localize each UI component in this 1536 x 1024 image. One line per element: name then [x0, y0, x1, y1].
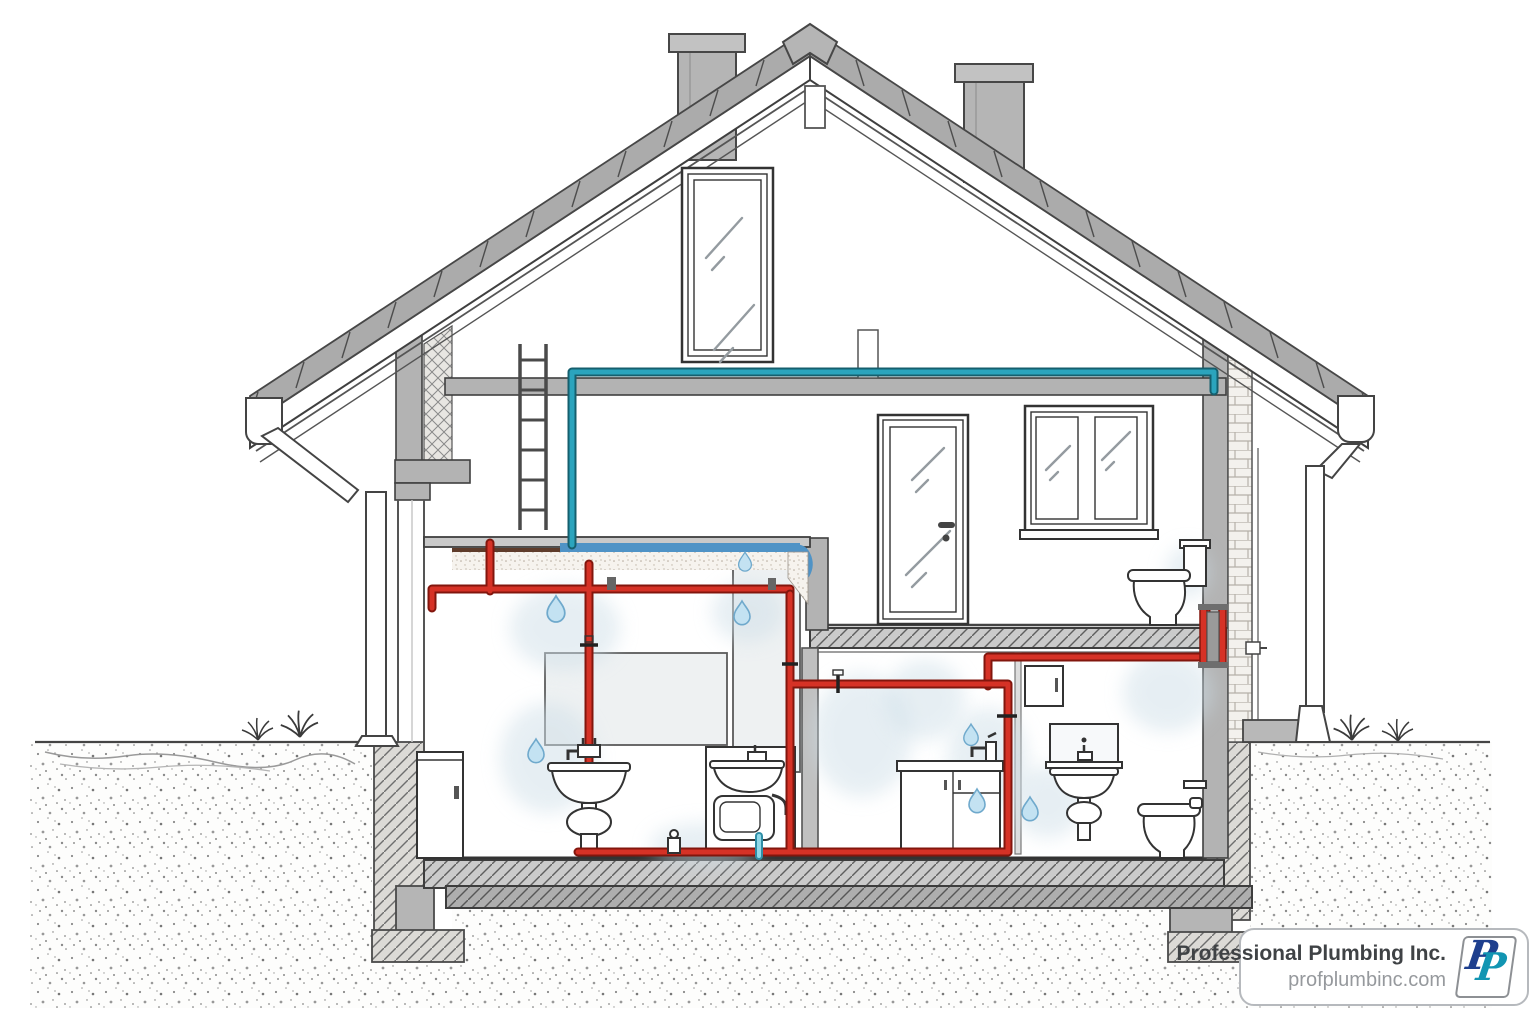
chimney-cap: [955, 64, 1033, 82]
wall-plate: [395, 483, 430, 500]
attic-floor: [445, 378, 1226, 395]
interior-door: [878, 415, 968, 624]
pipe-chase: [1198, 604, 1228, 668]
ceiling-insulation: [452, 552, 806, 570]
toilet-paper-holder: [1184, 781, 1206, 788]
floor-slab: [424, 858, 1252, 908]
waterproofing-membrane: [560, 543, 800, 552]
brand-badge: Professional Plumbing Inc. profplumbinc.…: [1239, 928, 1529, 1006]
gutter-right: [1338, 396, 1374, 442]
p-trap: [567, 808, 611, 836]
sink-rim: [710, 761, 784, 768]
cabinet-handle: [1055, 678, 1058, 692]
attic-window: [682, 168, 773, 362]
downspout-right: [1296, 444, 1360, 742]
mid-floor: [810, 625, 1226, 652]
faucet: [1078, 752, 1092, 760]
faucet: [578, 745, 600, 757]
website-url: profplumbinc.com: [1176, 968, 1446, 993]
cabinet-handle: [454, 786, 459, 799]
tile-band-right: [810, 28, 1368, 424]
brand-text: Professional Plumbing Inc. profplumbinc.…: [1176, 941, 1446, 992]
pipe-hanger: [607, 577, 616, 590]
door-handle: [938, 522, 955, 528]
floor-drain: [668, 830, 680, 853]
gable-wall-section: [424, 326, 452, 478]
kitchen-faucet: [986, 742, 996, 763]
ladder: [520, 344, 546, 530]
toilet-ground-floor: [1138, 798, 1202, 858]
toilet-upper-floor: [1128, 540, 1210, 625]
toilet-seat: [1128, 570, 1190, 581]
rafter-line: [814, 90, 1364, 451]
utility-cabinet: [417, 752, 463, 858]
brick-facade: [1228, 330, 1252, 742]
downspout-shoe: [356, 736, 398, 746]
downspout-left: [262, 428, 398, 746]
window-sill: [1020, 530, 1158, 539]
utility-sink-unit: [706, 745, 795, 855]
sink-rim: [548, 763, 630, 771]
company-name: Professional Plumbing Inc.: [1176, 941, 1446, 967]
pp-logo-icon: P P: [1455, 936, 1518, 998]
base-cabinet: [901, 771, 1000, 854]
house-cross-section: [0, 0, 1536, 1024]
toilet-bowl: [1144, 816, 1195, 858]
sink-rim: [1050, 768, 1118, 775]
toilet-bowl: [1134, 581, 1185, 625]
wall-plate: [395, 460, 470, 483]
chimney-cap: [669, 34, 745, 52]
p-trap: [1067, 802, 1101, 824]
faucet: [748, 752, 766, 761]
ridge-vent: [805, 86, 825, 128]
hose-bib: [1246, 642, 1260, 654]
pipe-hanger: [768, 578, 776, 590]
logo-letter-p2: P: [1474, 944, 1509, 989]
countertop: [897, 761, 1003, 771]
upper-window: [1020, 406, 1158, 539]
plumbing-diagram-page: Professional Plumbing Inc. profplumbinc.…: [0, 0, 1536, 1024]
